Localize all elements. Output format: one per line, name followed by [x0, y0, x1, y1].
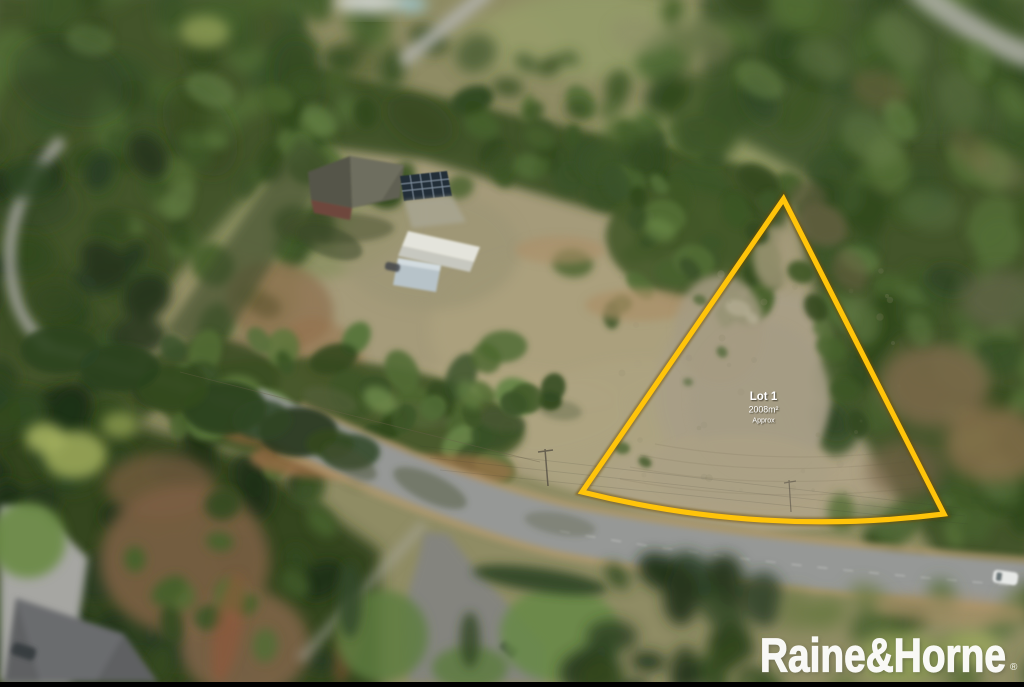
svg-text:2008m²: 2008m²: [749, 405, 779, 415]
svg-text:Approx: Approx: [752, 418, 775, 425]
svg-text:Raine&Horne: Raine&Horne: [760, 629, 1006, 682]
svg-text:Lot 1: Lot 1: [750, 391, 778, 403]
svg-text:®: ®: [1010, 662, 1018, 673]
